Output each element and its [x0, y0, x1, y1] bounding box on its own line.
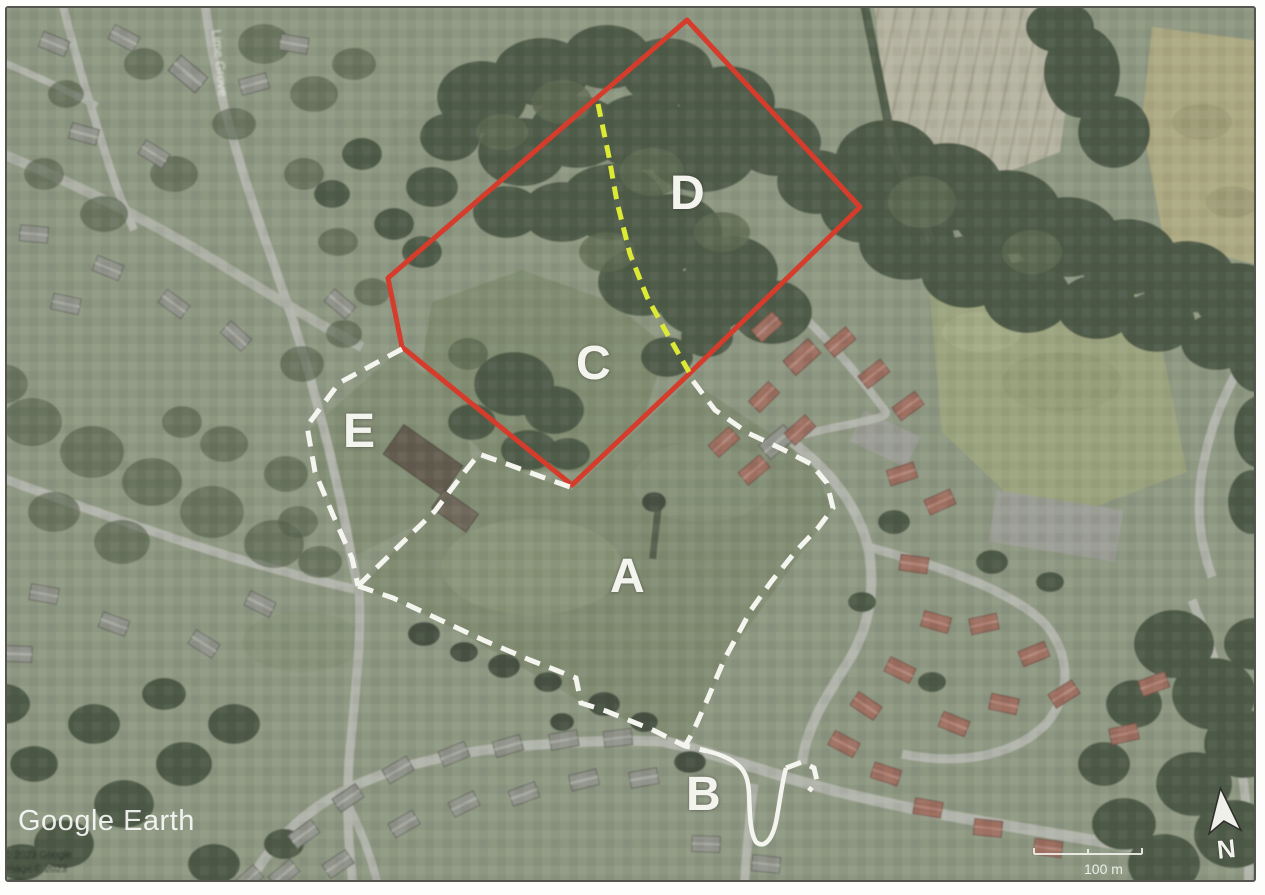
area-label-c: C	[576, 337, 611, 390]
area-label-b: B	[686, 768, 721, 821]
area-label-e: E	[343, 405, 375, 458]
attribution-text-2: Image © 2023	[5, 864, 67, 875]
haze-overlay	[5, 6, 1256, 882]
area-label-a: A	[610, 550, 645, 603]
scanned-page: A B C D E Google Earth © 2023 Google Ima…	[0, 0, 1265, 895]
north-label: N	[1215, 833, 1237, 865]
attribution-text: © 2023 Google	[5, 850, 72, 861]
aerial-photo-svg: A B C D E Google Earth © 2023 Google Ima…	[5, 6, 1256, 882]
satellite-imagery	[5, 6, 1256, 882]
aerial-map: A B C D E Google Earth © 2023 Google Ima…	[5, 6, 1256, 882]
google-earth-watermark: Google Earth	[18, 805, 195, 837]
area-label-d: D	[670, 167, 705, 220]
scale-label: 100 m	[1084, 861, 1123, 877]
